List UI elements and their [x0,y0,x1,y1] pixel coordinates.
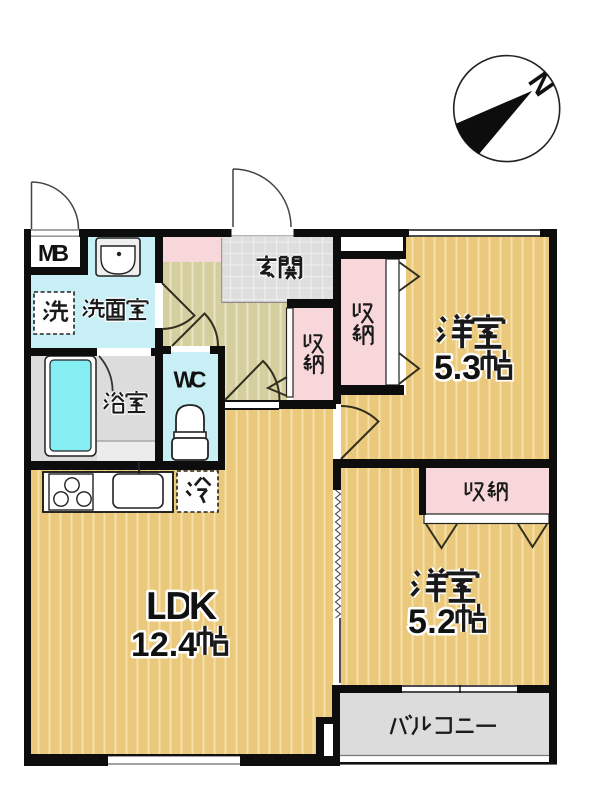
svg-text:MB: MB [38,240,69,266]
svg-text:LDK: LDK [146,585,217,628]
svg-text:WC: WC [174,367,207,393]
svg-text:12.4: 12.4 [131,626,197,664]
svg-text:5.2: 5.2 [408,603,456,641]
svg-text:5.3: 5.3 [434,349,481,387]
